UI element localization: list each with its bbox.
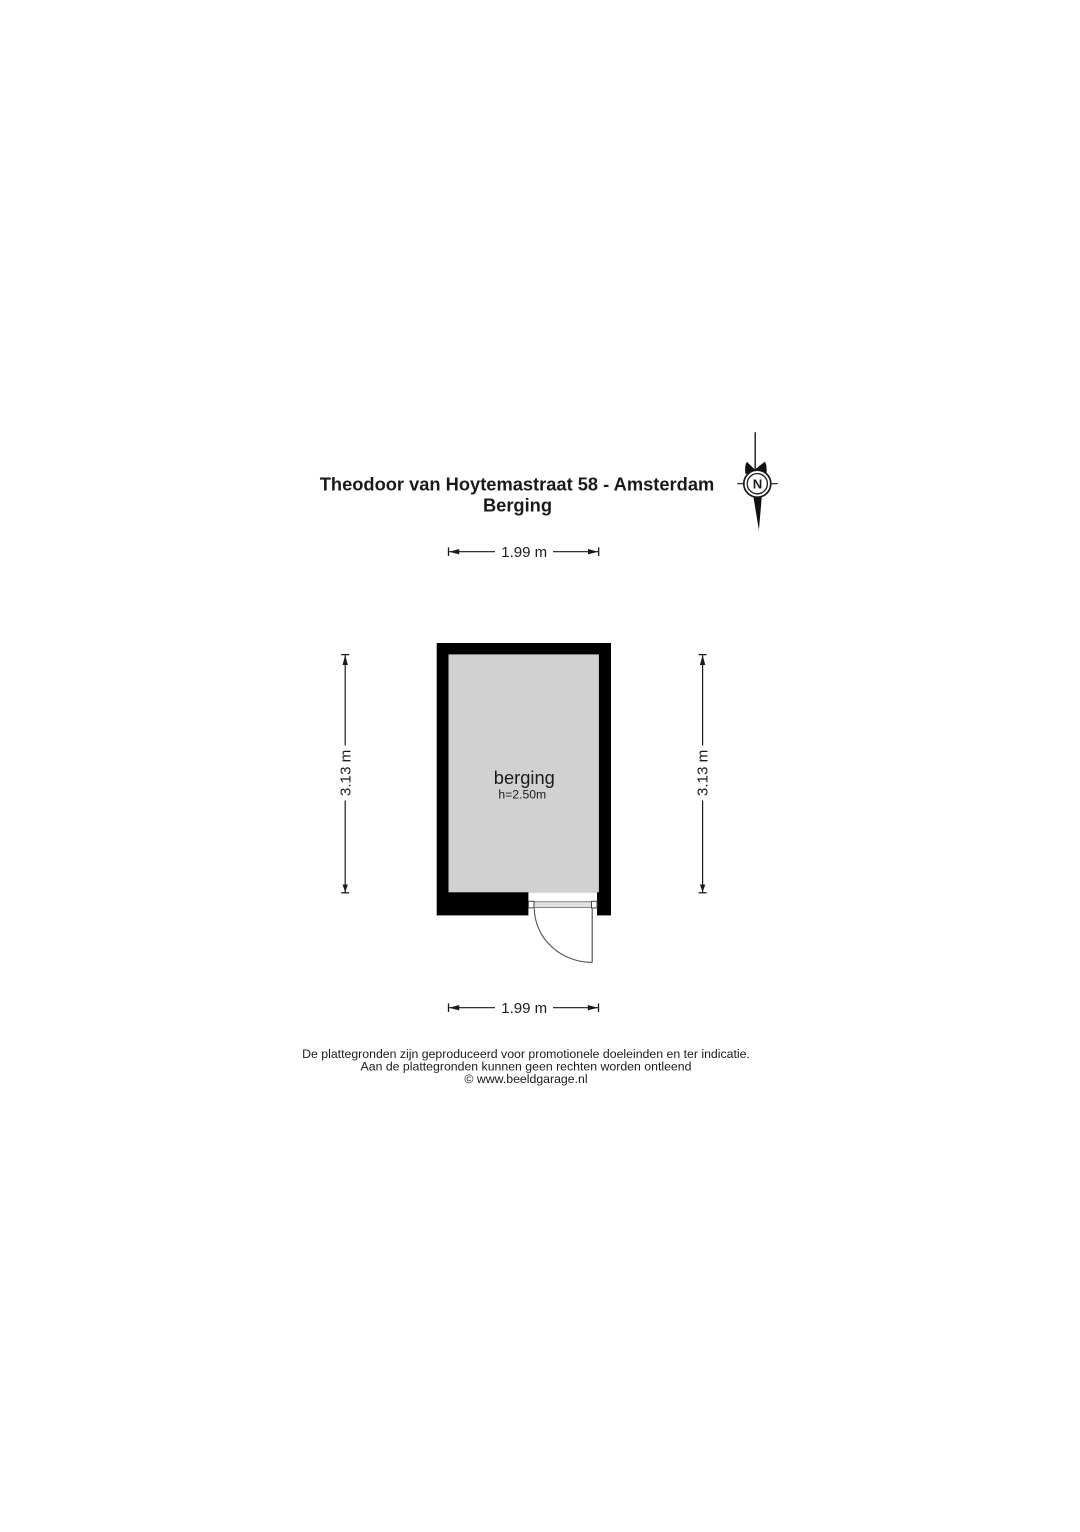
svg-text:berging: berging [494,767,555,788]
svg-text:© www.beeldgarage.nl: © www.beeldgarage.nl [464,1072,587,1086]
svg-text:Theodoor van Hoytemastraat 58: Theodoor van Hoytemastraat 58 - Amsterda… [320,474,715,495]
svg-text:1.99 m: 1.99 m [501,1000,547,1017]
svg-text:3.13 m: 3.13 m [337,750,354,796]
svg-text:3.13 m: 3.13 m [695,750,712,796]
svg-text:N: N [753,476,763,491]
svg-text:1.99 m: 1.99 m [501,544,547,561]
svg-text:Berging: Berging [483,495,552,516]
svg-text:h=2.50m: h=2.50m [498,788,546,802]
